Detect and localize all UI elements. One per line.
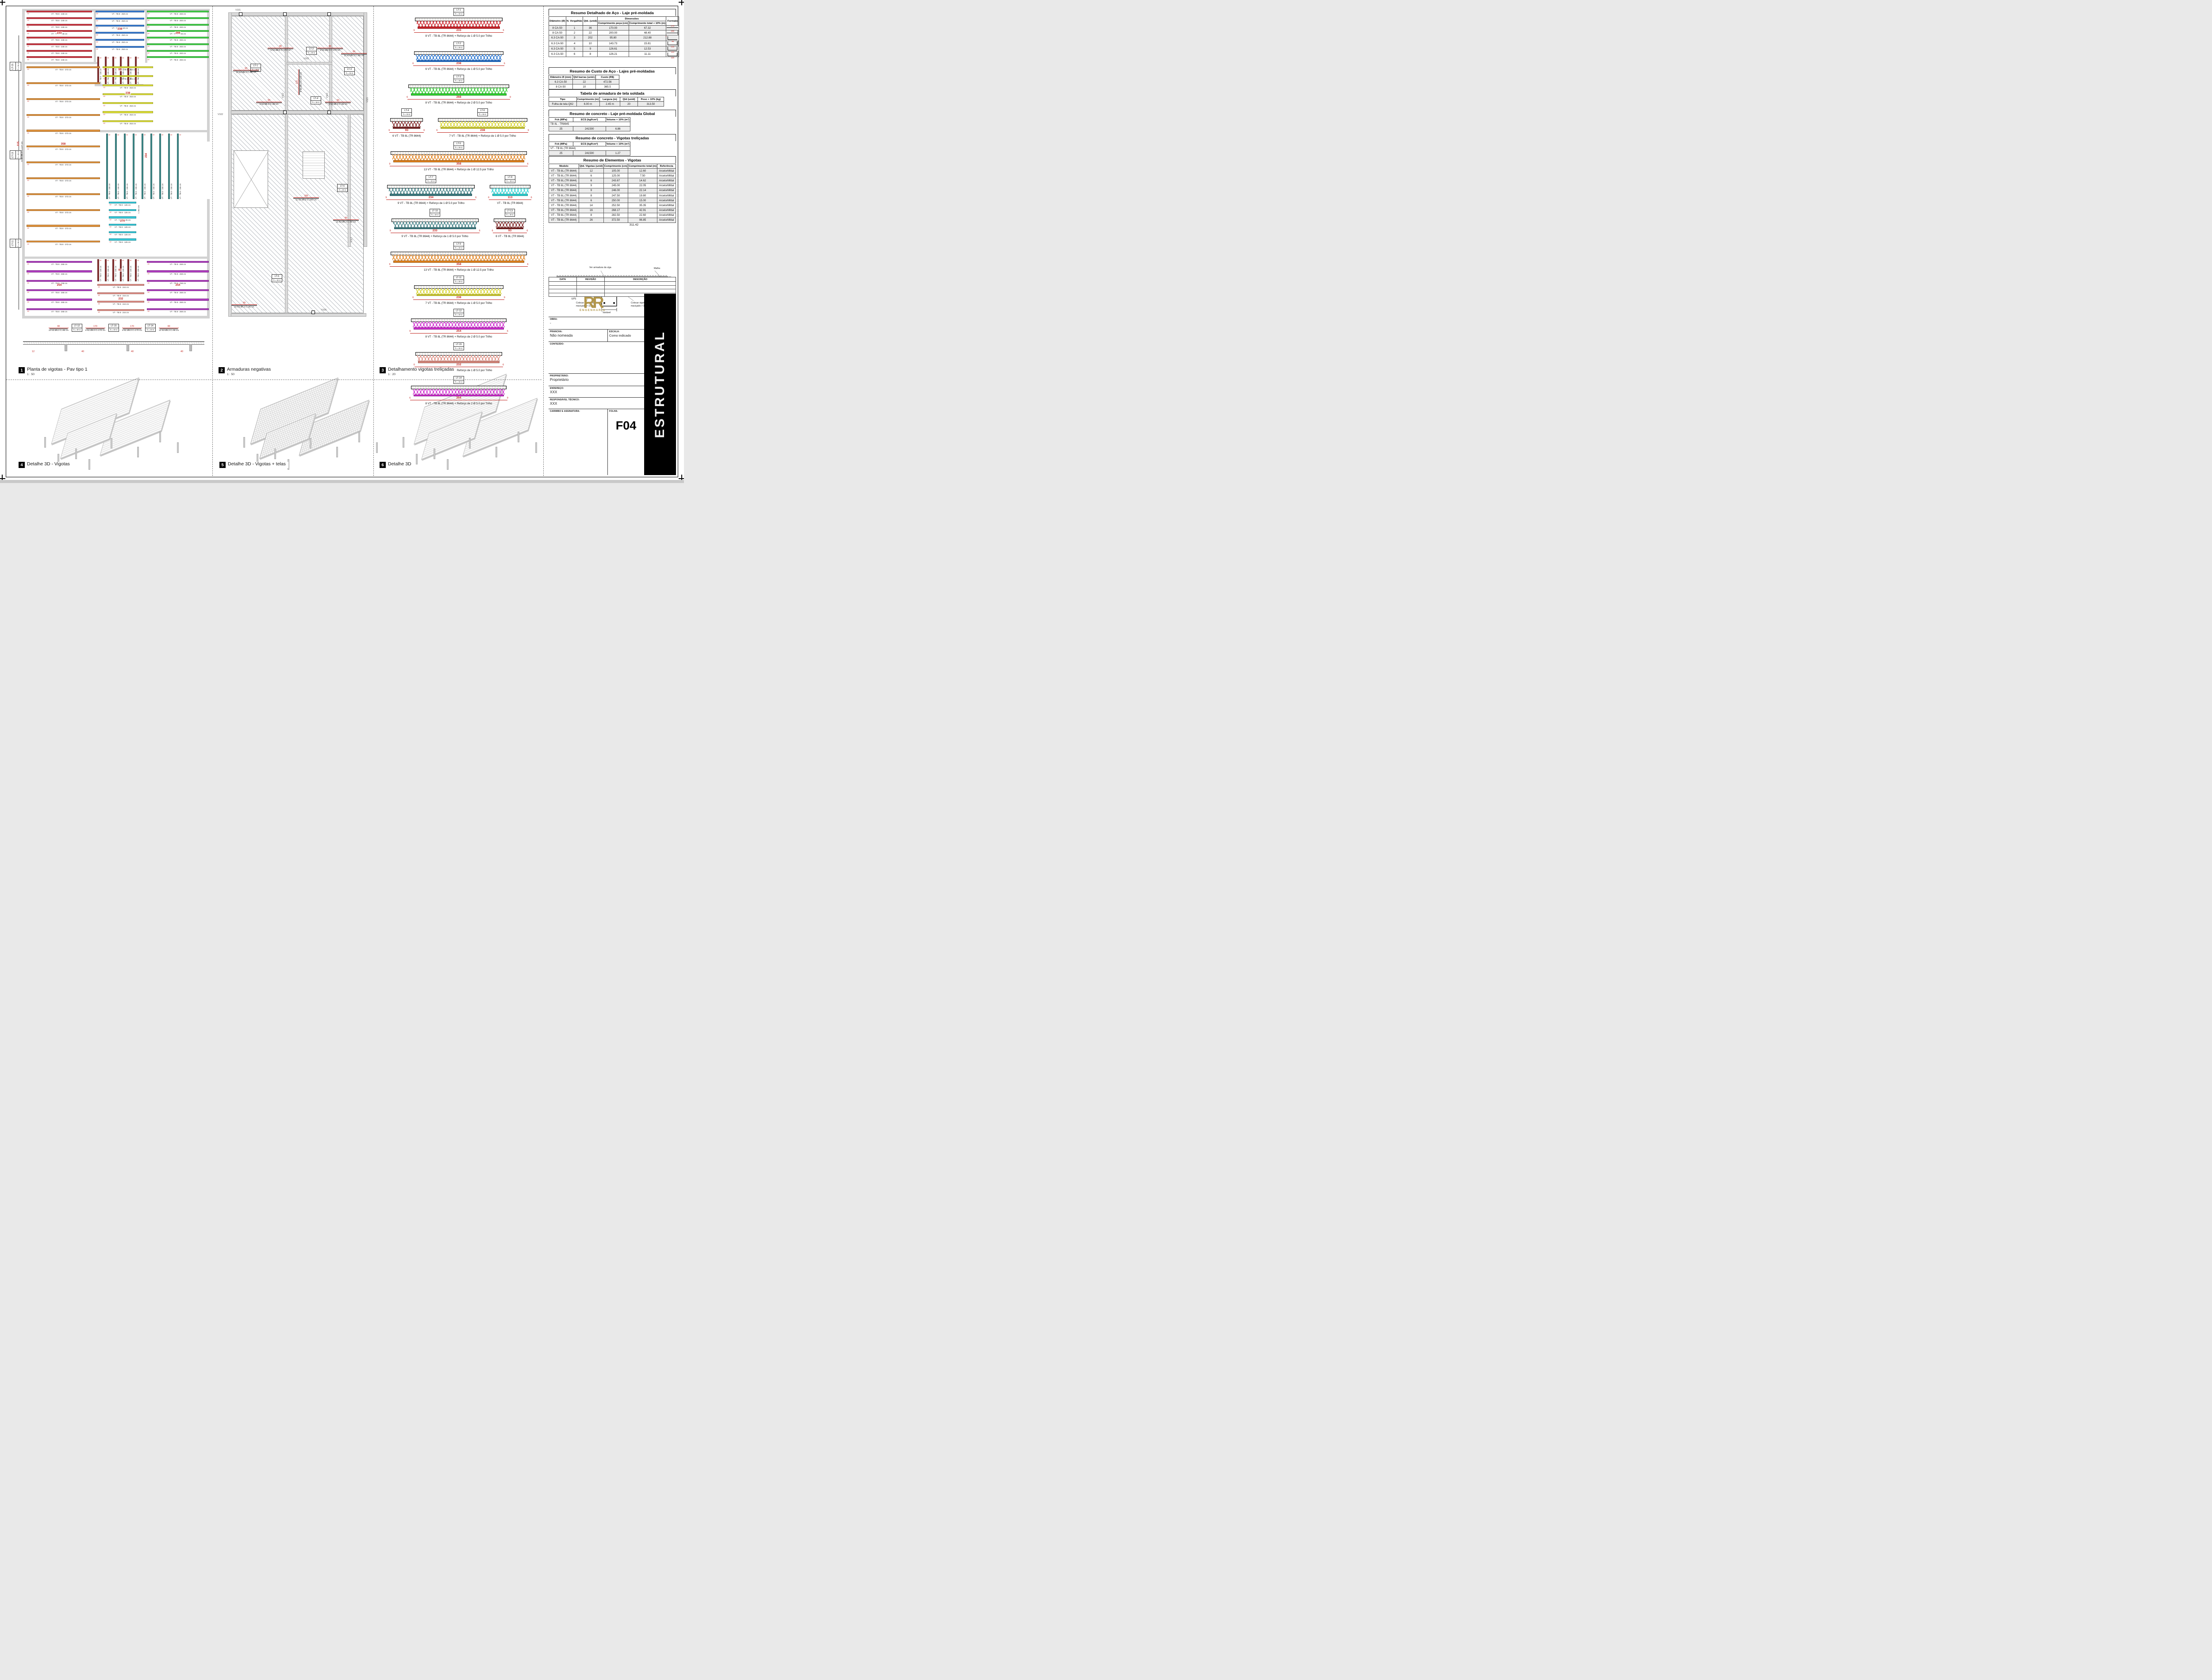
column-marker bbox=[283, 12, 287, 16]
table-cell: 96.85 bbox=[628, 218, 657, 222]
spacing-dim: 42 bbox=[27, 26, 29, 28]
left-section-line bbox=[19, 35, 19, 310]
vigota-bar bbox=[27, 37, 92, 38]
vigota-bar bbox=[27, 56, 92, 58]
section-rebar: 9012 N3 Ø6.3 C=96 cm bbox=[159, 325, 179, 332]
table-cell: 8 CA-50 bbox=[549, 84, 573, 89]
vigota-bar-label: VT - TB 8 - 253 cm bbox=[103, 123, 153, 125]
truss-tag: LT-8h = 8+4 bbox=[505, 175, 515, 183]
truss-caption: 7 VT - TB 8L (TR 8644) + Reforço de 1 Ø … bbox=[412, 302, 505, 305]
truss-body: 62549 bbox=[409, 386, 508, 402]
table-cell: 245.00 bbox=[603, 183, 628, 188]
detail-label-ver-armadura: Ver armadura da viga bbox=[589, 266, 615, 269]
table-cell: 6 bbox=[579, 178, 604, 183]
table-grid: Fck (MPa)ECS (kgf/cm²)Volume + 10% (m³)V… bbox=[549, 141, 676, 156]
table-5: Resumo de concreto - Vigotas treliçadasF… bbox=[549, 134, 676, 156]
obra-label: OBRA: bbox=[549, 317, 644, 321]
table-cell: 268.17 bbox=[603, 208, 628, 213]
vigota-bar-label: VT - TB 8 - 253 cm bbox=[103, 78, 153, 80]
vigota-group: VT - TB 8 - 250 cm42VT - TB 8 - 250 cm42… bbox=[96, 11, 144, 53]
spacing-dim: 42 bbox=[27, 301, 29, 303]
vigota-bar bbox=[147, 56, 209, 58]
col-header: N. Vergalhão bbox=[566, 17, 583, 26]
table-cell: VT - TB 8L (TR 8644) bbox=[549, 218, 579, 222]
col-header: Diâmetro (Ø) bbox=[549, 17, 566, 26]
table-row: 252415001.27 bbox=[549, 151, 630, 156]
section-rebar-dim: 170 bbox=[85, 325, 105, 328]
lt-tag: LT-6h = 8+4 bbox=[337, 184, 348, 192]
table-row: Folha de tela Q926.00 m2.45 m20313.50 bbox=[549, 102, 664, 107]
col-subheader: Comprimento peça (cm) bbox=[598, 21, 629, 26]
spacing-dim: 42 bbox=[27, 227, 29, 229]
truss-lt-11: LT-11h = 8+4623897 VT - TB 8L (TR 8644) … bbox=[412, 276, 505, 305]
spacing-dim: 42 bbox=[96, 48, 98, 50]
vigota-bar bbox=[27, 146, 100, 147]
vigota-bar-label: VT - TB 8 - 253 cm bbox=[103, 96, 153, 98]
table-cell: 6.3 CA-50 bbox=[549, 35, 566, 41]
plan-wall bbox=[22, 257, 210, 259]
truss-web bbox=[389, 188, 473, 194]
vigota-bar bbox=[103, 75, 153, 77]
spacing-dim: 42 bbox=[27, 84, 29, 86]
group-dim: 93 bbox=[97, 268, 142, 272]
col-header: Volume + 10% (m³) bbox=[606, 118, 630, 122]
col-header: Fck (MPa) bbox=[549, 142, 573, 146]
truss-lt-10: LT-10h = 8+4923369 VT - TB 8L (TR 8644) … bbox=[390, 209, 480, 238]
lt-tag: LT-5h = 8+4 bbox=[272, 274, 282, 282]
truss-dim-right: 6 bbox=[531, 196, 532, 199]
table-cell: 472.56 bbox=[596, 80, 619, 84]
vigota-bar-label: VT - TB 8 - 268 cm bbox=[147, 273, 209, 275]
panel-separator-vertical-2 bbox=[373, 6, 374, 476]
vigota-bar-label: VT - TB 8 - 125 cm bbox=[109, 204, 136, 206]
truss-dim-line: 6936 bbox=[492, 230, 528, 234]
rebar-label: 8 N6 Ø6.3 C=126 cm bbox=[300, 69, 303, 95]
rebar-label: 12 N3 Ø6.3 C=96 cm bbox=[341, 54, 367, 57]
table-grid: Fck (MPa)ECS (kgf/cm²)Volume + 10% (m³)T… bbox=[549, 117, 676, 131]
section-rebar-label: 9 N1 Ø8.0 C=170 cm bbox=[85, 329, 105, 332]
rebar-dim: 90 bbox=[333, 217, 359, 220]
truss-body: 92336 bbox=[413, 18, 504, 34]
table-cell: VT - TB 8L (TR 8644) bbox=[549, 178, 579, 183]
vigota-bar-label: VT - TB 8 - 373 cm bbox=[27, 132, 100, 134]
truss-caption: VT - TB 8L (TR 8644) bbox=[488, 202, 532, 205]
concrete-beam bbox=[231, 313, 366, 317]
rebar-dim: 115 bbox=[296, 69, 299, 95]
spacing-dim: 42 bbox=[96, 34, 98, 36]
truss-body: 93586 bbox=[389, 151, 528, 167]
vigota-bar bbox=[147, 11, 209, 12]
vigota-group: VT - TB 8 - 125 cm42VT - TB 8 - 125 cm42… bbox=[109, 202, 136, 246]
spacing-dim: 42 bbox=[27, 52, 29, 54]
table-row: 252415006.86 bbox=[549, 127, 630, 131]
spacing-dim: 42 bbox=[170, 134, 172, 136]
vigota-bar bbox=[27, 308, 92, 310]
spacing-dim: 42 bbox=[27, 59, 29, 61]
vigota-bar bbox=[27, 289, 92, 291]
vigota-bar bbox=[150, 134, 152, 199]
vigota-bar-label: VT - TB 8 - 373 cm bbox=[27, 180, 100, 182]
spacing-dim: 42 bbox=[98, 311, 100, 313]
table-cell: 26 bbox=[579, 218, 604, 222]
table-cell: ArcelorMittal bbox=[657, 203, 676, 208]
table-cell: 243.67 bbox=[603, 178, 628, 183]
table-cell: 36 bbox=[583, 26, 598, 31]
vigota-bar bbox=[96, 32, 144, 34]
spacing-dim: 42 bbox=[96, 20, 98, 22]
truss-row: LT-1h = 8+4923368 VT - TB 8L (TR 8644) +… bbox=[376, 8, 541, 38]
table-row: 8 CA-5010365.5 bbox=[549, 84, 619, 89]
truss-dim-length: 358 bbox=[389, 263, 528, 266]
logo-rr-text: RR bbox=[580, 295, 606, 310]
truss-lt-5: LT-5h = 8+49358613 VT - TB 8L (TR 8644) … bbox=[389, 142, 528, 171]
panel-label-3: 3Detalhamento vigotas treliçadas1 : 20 bbox=[380, 367, 457, 376]
rebar-label: 12 N3 Ø6.3 C=96 cm bbox=[233, 71, 259, 74]
discipline-banner: ESTRUTURAL bbox=[644, 294, 676, 475]
spacing-dim: 42 bbox=[110, 204, 111, 206]
table-cell: 200.00 bbox=[598, 31, 629, 35]
vigota-bar-label: VT - TB 8 - 373 cm bbox=[27, 100, 100, 103]
vigota-bar-label: VT - TB 8 - 373 cm bbox=[27, 227, 100, 230]
table-cell: ArcelorMittal bbox=[657, 208, 676, 213]
table-cell: 125.00 bbox=[603, 173, 628, 178]
table-cell: ArcelorMittal bbox=[657, 183, 676, 188]
vigota-bar-label: VT - TB 8 - 268 cm bbox=[27, 273, 92, 275]
col-header: ECS (kgf/cm²) bbox=[573, 118, 606, 122]
table-cell: 6.86 bbox=[606, 127, 630, 131]
spacing-dim: 42 bbox=[107, 57, 109, 59]
table-cell: 907 bbox=[666, 35, 679, 41]
spacing-dim: 42 bbox=[130, 57, 131, 59]
beam-name: V102 bbox=[218, 113, 223, 116]
concrete-beam bbox=[231, 12, 366, 16]
table-title: Resumo Detalhado de Aço - Laje pré-molda… bbox=[549, 9, 676, 16]
rebar-dim: 90 bbox=[231, 302, 257, 305]
proprietario-value: Proprietário bbox=[549, 377, 644, 382]
truss-web bbox=[417, 21, 500, 27]
plan-wall bbox=[100, 130, 210, 132]
spacing-dim: 42 bbox=[148, 19, 150, 21]
column-marker bbox=[283, 111, 287, 114]
beam-name: V101 bbox=[235, 9, 241, 12]
spacing-dim: 42 bbox=[148, 26, 150, 28]
table-cell: 6 bbox=[579, 173, 604, 178]
table-row: VT - TB 8L (TR 8644)6243.6714.62ArcelorM… bbox=[549, 178, 676, 183]
vigota-bar bbox=[147, 37, 209, 38]
col-header: Qtd (unid) bbox=[620, 97, 637, 102]
table-cell: 126.61 bbox=[598, 46, 629, 51]
panel-detalhamento-vigotas: LT-1h = 8+4923368 VT - TB 8L (TR 8644) +… bbox=[376, 8, 541, 366]
vigota-bar-label: VT - TB 8 - 283 cm bbox=[147, 52, 209, 54]
spacing-dim: 42 bbox=[153, 134, 154, 136]
vigota-bar bbox=[97, 309, 144, 311]
table-cell: 1.27 bbox=[606, 151, 630, 156]
table-cell: 6 bbox=[579, 198, 604, 203]
vigota-bar bbox=[96, 18, 144, 19]
concrete-beam bbox=[228, 12, 232, 317]
truss-tag: LT-12h = 8+4 bbox=[453, 309, 464, 317]
rebar-dim: 90 bbox=[256, 99, 282, 102]
vigota-group: VT - TB 8 - 253 cm42VT - TB 8 - 253 cm42… bbox=[103, 66, 153, 129]
truss-dim-right: 6 bbox=[527, 163, 529, 165]
table-cell: 20 bbox=[620, 102, 637, 107]
table-cell: Folha de tela Q92 bbox=[549, 102, 577, 107]
spacing-dim: 42 bbox=[96, 13, 98, 15]
elevator-void bbox=[303, 151, 325, 179]
table-cell: VT - TB 8L (TR 8644) bbox=[549, 198, 579, 203]
prancha-value: Não nomeada bbox=[549, 333, 607, 338]
truss-web bbox=[392, 121, 421, 127]
vigota-bar-label: VT - TB 8 - 283 cm bbox=[147, 46, 209, 48]
truss-body: 62326 bbox=[414, 352, 504, 368]
truss-dim-right: 9 bbox=[528, 129, 529, 132]
table-cell: 8 bbox=[579, 193, 604, 198]
section-support bbox=[127, 344, 129, 351]
table-cell: VT - TB 8L (TR 8644) bbox=[549, 183, 579, 188]
proprietario-label: PROPRIETÁRIO: bbox=[549, 374, 644, 377]
spacing-dim: 42 bbox=[130, 260, 131, 261]
truss-caption: 13 VT - TB 8L (TR 8644) + Reforço de 1 Ø… bbox=[389, 268, 528, 272]
table-row: 8 CA-50136170.0067.32170 bbox=[549, 26, 679, 31]
vigota-bar-label: VT - TB 8 - 253 cm bbox=[103, 87, 153, 89]
table-cell: 212.88 bbox=[629, 35, 666, 41]
section-rebar: 1709 N1 Ø8.0 C=170 cm bbox=[122, 325, 142, 332]
table-1: Resumo Detalhado de Aço - Laje pré-molda… bbox=[549, 9, 676, 57]
vigota-bar bbox=[27, 193, 100, 195]
slab-hatch bbox=[231, 114, 364, 313]
truss-row: LT-12h = 8+4925468 VT - TB 8L (TR 8644) … bbox=[376, 309, 541, 338]
table-cell: 12.53 bbox=[629, 46, 666, 51]
vigota-bar bbox=[27, 209, 100, 211]
left-section-tag: LT-13h = 8+4 bbox=[10, 150, 21, 159]
formato-shape-L: 907 bbox=[668, 36, 677, 40]
table-subrow: TB 8L - TR8645 bbox=[549, 122, 630, 127]
vigota-bar bbox=[27, 241, 100, 242]
vigota-bar bbox=[106, 134, 108, 199]
truss-dim-right: 6 bbox=[507, 330, 508, 333]
vigota-bar-label: VT - TB 8 - 250 cm bbox=[96, 20, 144, 22]
field-endereco: ENDEREÇO: XXX bbox=[549, 386, 644, 397]
vigota-bar bbox=[27, 82, 100, 84]
table-cell: 252.50 bbox=[603, 203, 628, 208]
table-cell: ArcelorMittal bbox=[657, 193, 676, 198]
vigota-bar bbox=[109, 216, 136, 218]
truss-dim-length: 238 bbox=[436, 129, 529, 132]
section-support bbox=[65, 344, 67, 351]
truss-tag: LT-14h = 8+4 bbox=[453, 376, 464, 384]
spacing-dim: 42 bbox=[27, 13, 29, 15]
vigota-bar-label: VT - TB 8 - 246 cm bbox=[170, 135, 173, 199]
table-cell: 313.50 bbox=[637, 102, 664, 107]
logo-subtitle: ENGENHARIA bbox=[580, 309, 606, 312]
table-cell: 16 bbox=[579, 208, 604, 213]
truss-caption: 9 VT - TB 8L (TR 8644) + Reforço de 1 Ø … bbox=[390, 235, 480, 238]
section-rebar-label: 13 N3 Ø6.3 C=96 cm bbox=[49, 329, 69, 332]
spacing-dim: 42 bbox=[108, 134, 110, 136]
spacing-dim: 42 bbox=[27, 311, 29, 312]
vigota-bar-label: VT - TB 8 - 268 cm bbox=[27, 263, 92, 265]
table-row: 6.3 CA-5022472.56 bbox=[549, 80, 619, 84]
truss-dim-length: 93 bbox=[388, 129, 425, 132]
table-cell: VT - TB 8L (TR 8644) bbox=[549, 203, 579, 208]
truss-body: 61136 bbox=[488, 185, 532, 201]
column-marker bbox=[327, 111, 331, 114]
spacing-dim: 42 bbox=[27, 243, 29, 245]
vigota-bar-label: VT - TB 8 - 268 cm bbox=[27, 292, 92, 294]
concrete-beam bbox=[285, 114, 288, 313]
group-dim: 234 bbox=[145, 153, 148, 158]
spacing-dim: 42 bbox=[117, 134, 119, 136]
table-cell: 9 bbox=[583, 46, 598, 51]
field-folha: FOLHA: F04 bbox=[607, 409, 644, 475]
table-row: VT - TB 8L (TR 8644)9246.0022.14ArcelorM… bbox=[549, 188, 676, 193]
vigota-bar bbox=[96, 39, 144, 41]
truss-tag: LT-13h = 8+4 bbox=[505, 209, 515, 217]
obra-value: - bbox=[549, 321, 644, 325]
field-conteudo: CONTEÚDO: bbox=[549, 341, 644, 373]
section-support bbox=[189, 344, 192, 351]
rev-col-descricao: DESCRIÇÃO bbox=[605, 277, 676, 282]
vigota-bar-label: VT - TB 8 - 268 cm bbox=[27, 311, 92, 313]
spacing-dim: 42 bbox=[148, 46, 150, 47]
section-tag: LT-15h = 8+4 bbox=[108, 324, 119, 332]
rebar-dim: 90 bbox=[341, 50, 367, 54]
spacing-dim: 42 bbox=[98, 303, 100, 305]
field-obra: OBRA: - bbox=[549, 317, 644, 329]
concrete-beam bbox=[231, 111, 366, 114]
truss-web bbox=[495, 222, 525, 227]
table-cell: 132 bbox=[666, 41, 679, 46]
table-title: Resumo de concreto - Vigotas treliçadas bbox=[549, 134, 676, 141]
truss-body: 92346 bbox=[385, 185, 476, 201]
truss-row: LT-10h = 8+4923369 VT - TB 8L (TR 8644) … bbox=[376, 209, 541, 238]
endereco-value: XXX bbox=[549, 390, 644, 394]
table-cell: ArcelorMittal bbox=[657, 173, 676, 178]
table-row: VT - TB 8L (TR 8644)12105.0012.60Arcelor… bbox=[549, 169, 676, 173]
truss-dim-length: 232 bbox=[414, 363, 504, 366]
table-row: 6.3 CA-50320295.80212.88907 bbox=[549, 35, 679, 41]
table-cell: 14 bbox=[579, 203, 604, 208]
table-cell: 35.35 bbox=[628, 203, 657, 208]
truss-caption: 8 VT - TB 8L (TR 8644) + Reforço de 1 Ø … bbox=[413, 35, 504, 38]
vigota-bar-label: VT - TB 8 - 268 cm bbox=[147, 311, 209, 313]
vigota-group: VT - TB 8 - 268 cm42VT - TB 8 - 268 cm42… bbox=[27, 261, 92, 318]
negative-rebar: 9011 N3 Ø6.3 C=96 cm bbox=[333, 217, 359, 223]
vigota-bar-label: VT - TB 8 - 246 cm bbox=[144, 135, 146, 199]
table-row: VT - TB 8L (TR 8644)8247.5019.80ArcelorM… bbox=[549, 193, 676, 198]
truss-web bbox=[413, 322, 505, 327]
table-cell: 19.80 bbox=[628, 193, 657, 198]
panel-number: 1 bbox=[19, 367, 25, 373]
beam-name: V103 bbox=[303, 58, 309, 60]
truss-dim-length: 268 bbox=[407, 96, 511, 99]
table-row: VT - TB 8L (TR 8644)14252.5035.35Arcelor… bbox=[549, 203, 676, 208]
truss-dim-right: 6 bbox=[479, 230, 480, 232]
vigota-bar bbox=[27, 114, 100, 116]
stair-void bbox=[234, 150, 268, 208]
table-cell: 48.40 bbox=[629, 31, 666, 35]
table-grid: Diâmetro (Ø)N. VergalhãoQtd. (unid)Dimen… bbox=[549, 16, 676, 57]
vigota-bar-label: VT - TB 8 - 373 cm bbox=[27, 243, 100, 245]
table-cell: 372.50 bbox=[603, 218, 628, 222]
table-cell: 15.81 bbox=[629, 41, 666, 46]
section-tag: LT-12h = 8+4 bbox=[72, 324, 82, 332]
vigota-bar-label: VT - TB 8 - 125 cm bbox=[109, 241, 136, 243]
vigota-bar-label: VT - TB 8 - 373 cm bbox=[27, 148, 100, 150]
spacing-dim: 42 bbox=[100, 260, 101, 261]
truss-caption: 6 VT - TB 8L (TR 8644) bbox=[388, 134, 425, 138]
table-cell: 1 bbox=[566, 26, 583, 31]
truss-dim-right: 6 bbox=[527, 263, 529, 266]
truss-lt-8: LT-8h = 8+461136VT - TB 8L (TR 8644) bbox=[488, 175, 532, 205]
table-row: 6.3 CA-5068126.2111.11115 bbox=[549, 51, 679, 57]
col-header: Modelo bbox=[549, 164, 579, 169]
vigota-bar bbox=[27, 261, 92, 263]
truss-tag: LT-3h = 8+4 bbox=[453, 75, 464, 83]
truss-row: LT-9h = 8+49358613 VT - TB 8L (TR 8644) … bbox=[376, 242, 541, 272]
rev-col-revisao: REVISÃO bbox=[577, 277, 605, 282]
vigota-bar-label: VT - TB 8 - 248 cm bbox=[27, 26, 92, 28]
rebar-label: 9 N1 Ø8.0 C=170 cm bbox=[317, 49, 343, 52]
truss-web bbox=[410, 88, 507, 93]
spacing-dim: 42 bbox=[104, 87, 105, 88]
truss-dim-right: 6 bbox=[504, 62, 505, 65]
revision-empty-row bbox=[549, 282, 676, 286]
vigota-bar-label: VT - TB 8 - 268 cm bbox=[147, 301, 209, 303]
panel-armaduras-negativas: V101V102V103V112V113V115V117V105LT-1h = … bbox=[216, 9, 372, 363]
panel-number: 2 bbox=[219, 367, 225, 373]
vigota-bar bbox=[97, 292, 144, 294]
field-proprietario: PROPRIETÁRIO: Proprietário bbox=[549, 373, 644, 386]
spacing-dim: 42 bbox=[27, 39, 29, 41]
vigota-bar-label: VT - TB 8 - 246 cm bbox=[126, 135, 128, 199]
vigota-bar-label: VT - TB 8 - 373 cm bbox=[27, 164, 100, 166]
vigota-bar bbox=[109, 238, 136, 240]
vigota-bar bbox=[103, 111, 153, 113]
table-cell: VT - TB 8L (TR 8644) bbox=[549, 193, 579, 198]
truss-dim-line: 92336 bbox=[413, 29, 504, 34]
vigota-bar bbox=[147, 261, 209, 263]
vigota-bar bbox=[27, 161, 100, 163]
vigota-group: VT - TB 8 - 105 cm42VT - TB 8 - 105 cm42… bbox=[97, 259, 142, 281]
vigota-bar-label: VT - TB 8 - 125 cm bbox=[109, 211, 136, 214]
spacing-dim: 42 bbox=[27, 196, 29, 197]
rebar-dim: 86 bbox=[317, 45, 343, 48]
spacing-dim: 42 bbox=[148, 52, 150, 54]
truss-web bbox=[416, 288, 501, 294]
vigota-bar-label: VT - TB 8 - 283 cm bbox=[147, 13, 209, 15]
spacing-dim: 42 bbox=[110, 234, 111, 235]
negative-rebar: 1158 N6 Ø6.3 C=126 cm bbox=[296, 69, 302, 95]
truss-dim-right: 6 bbox=[526, 230, 528, 232]
vigota-bar-label: VT - TB 8 - 244 cm bbox=[97, 295, 144, 297]
vigota-bar bbox=[168, 134, 170, 199]
col-header: Custo (R$) bbox=[596, 75, 619, 80]
table-cell: 10 bbox=[573, 84, 596, 89]
truss-web bbox=[440, 121, 525, 127]
left-section-rebar: 9 N5 Ø6.3 C=127 cm bbox=[21, 142, 23, 161]
table-cell: 7.50 bbox=[628, 173, 657, 178]
truss-tag: LT-11h = 8+4 bbox=[453, 276, 464, 284]
table-cell: 365.5 bbox=[596, 84, 619, 89]
table-row: VT - TB 8L (TR 8644)26372.5096.85Arcelor… bbox=[549, 218, 676, 222]
truss-tag: LT-15h = 8+4 bbox=[453, 342, 464, 350]
table-cell: ArcelorMittal bbox=[657, 169, 676, 173]
table-grid: Diâmetro Ø (mm)Qtd barras (unid.)Custo (… bbox=[549, 74, 676, 89]
rebar-label: 9 N1 Ø8.0 C=170 cm bbox=[268, 49, 293, 52]
truss-lt-9: LT-9h = 8+49358613 VT - TB 8L (TR 8644) … bbox=[389, 242, 528, 272]
vigota-bar-label: VT - TB 8 - 248 cm bbox=[27, 59, 92, 61]
